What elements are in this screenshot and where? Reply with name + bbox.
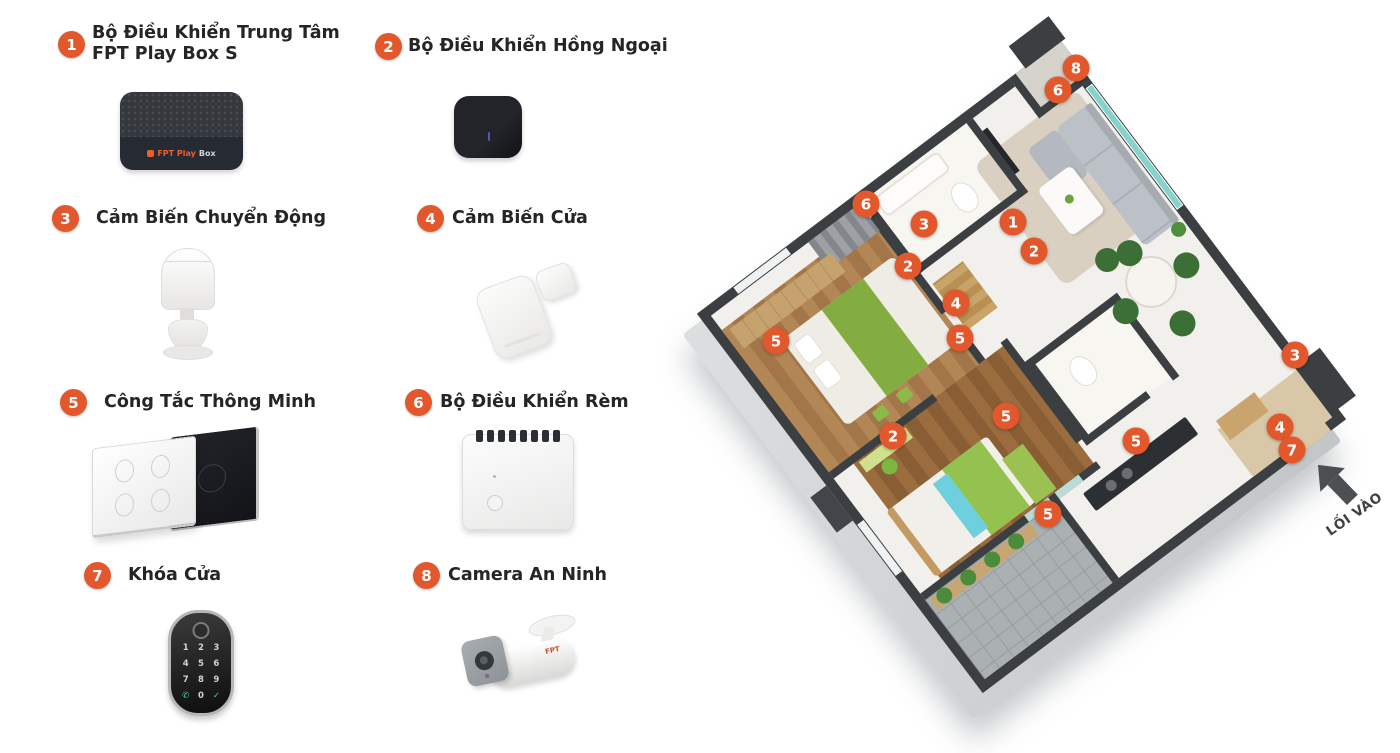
legend-badge-1: 1 bbox=[58, 31, 85, 58]
dining-chair bbox=[1164, 305, 1200, 341]
legend-badge-4: 4 bbox=[417, 205, 444, 232]
legend-badge-2: 2 bbox=[375, 33, 402, 60]
sensor-dome bbox=[161, 248, 215, 310]
check-icon: ✓ bbox=[209, 691, 224, 701]
legend-label-4: Cảm Biến Cửa bbox=[452, 208, 588, 229]
smart-home-infographic: 1 Bộ Điều Khiển Trung Tâm FPT Play Box S… bbox=[0, 0, 1400, 753]
fpt-play-box-image: FPT Play Box bbox=[120, 92, 243, 170]
security-camera-image: FPT bbox=[462, 612, 584, 707]
fpt-logo-icon bbox=[147, 150, 154, 157]
legend-badge-8: 8 bbox=[413, 562, 440, 589]
lock-keypad: 123 456 789 ✆ 0 ✓ bbox=[178, 643, 224, 701]
legend-badge-3: 3 bbox=[52, 205, 79, 232]
lock-brand-icon bbox=[193, 622, 210, 639]
speaker-fabric bbox=[120, 92, 243, 137]
floor-plan bbox=[697, 40, 1346, 693]
terminal-row bbox=[473, 430, 563, 442]
legend-badge-7: 7 bbox=[84, 562, 111, 589]
curtain-controller-image bbox=[462, 434, 574, 530]
legend-badge-6: 6 bbox=[405, 389, 432, 416]
legend-label-1: Bộ Điều Khiển Trung Tâm FPT Play Box S bbox=[92, 23, 340, 65]
legend-label-7: Khóa Cửa bbox=[128, 565, 221, 586]
ir-controller-image bbox=[454, 96, 522, 158]
legend-label-2: Bộ Điều Khiển Hồng Ngoại bbox=[408, 36, 668, 57]
legend-label-8: Camera An Ninh bbox=[448, 565, 607, 586]
door-sensor-image bbox=[478, 262, 578, 357]
motion-sensor-image bbox=[155, 248, 219, 363]
camera-lens bbox=[460, 634, 511, 688]
phone-icon: ✆ bbox=[178, 691, 193, 701]
door-lock-image: 123 456 789 ✆ 0 ✓ bbox=[168, 610, 234, 716]
legend-label-5: Công Tắc Thông Minh bbox=[104, 392, 316, 413]
legend-label-6: Bộ Điều Khiển Rèm bbox=[440, 392, 629, 413]
playbox-logo: FPT Play Box bbox=[120, 137, 243, 170]
legend-label-3: Cảm Biến Chuyển Động bbox=[96, 208, 326, 229]
legend-badge-5: 5 bbox=[60, 389, 87, 416]
smart-switch-image bbox=[90, 430, 260, 530]
